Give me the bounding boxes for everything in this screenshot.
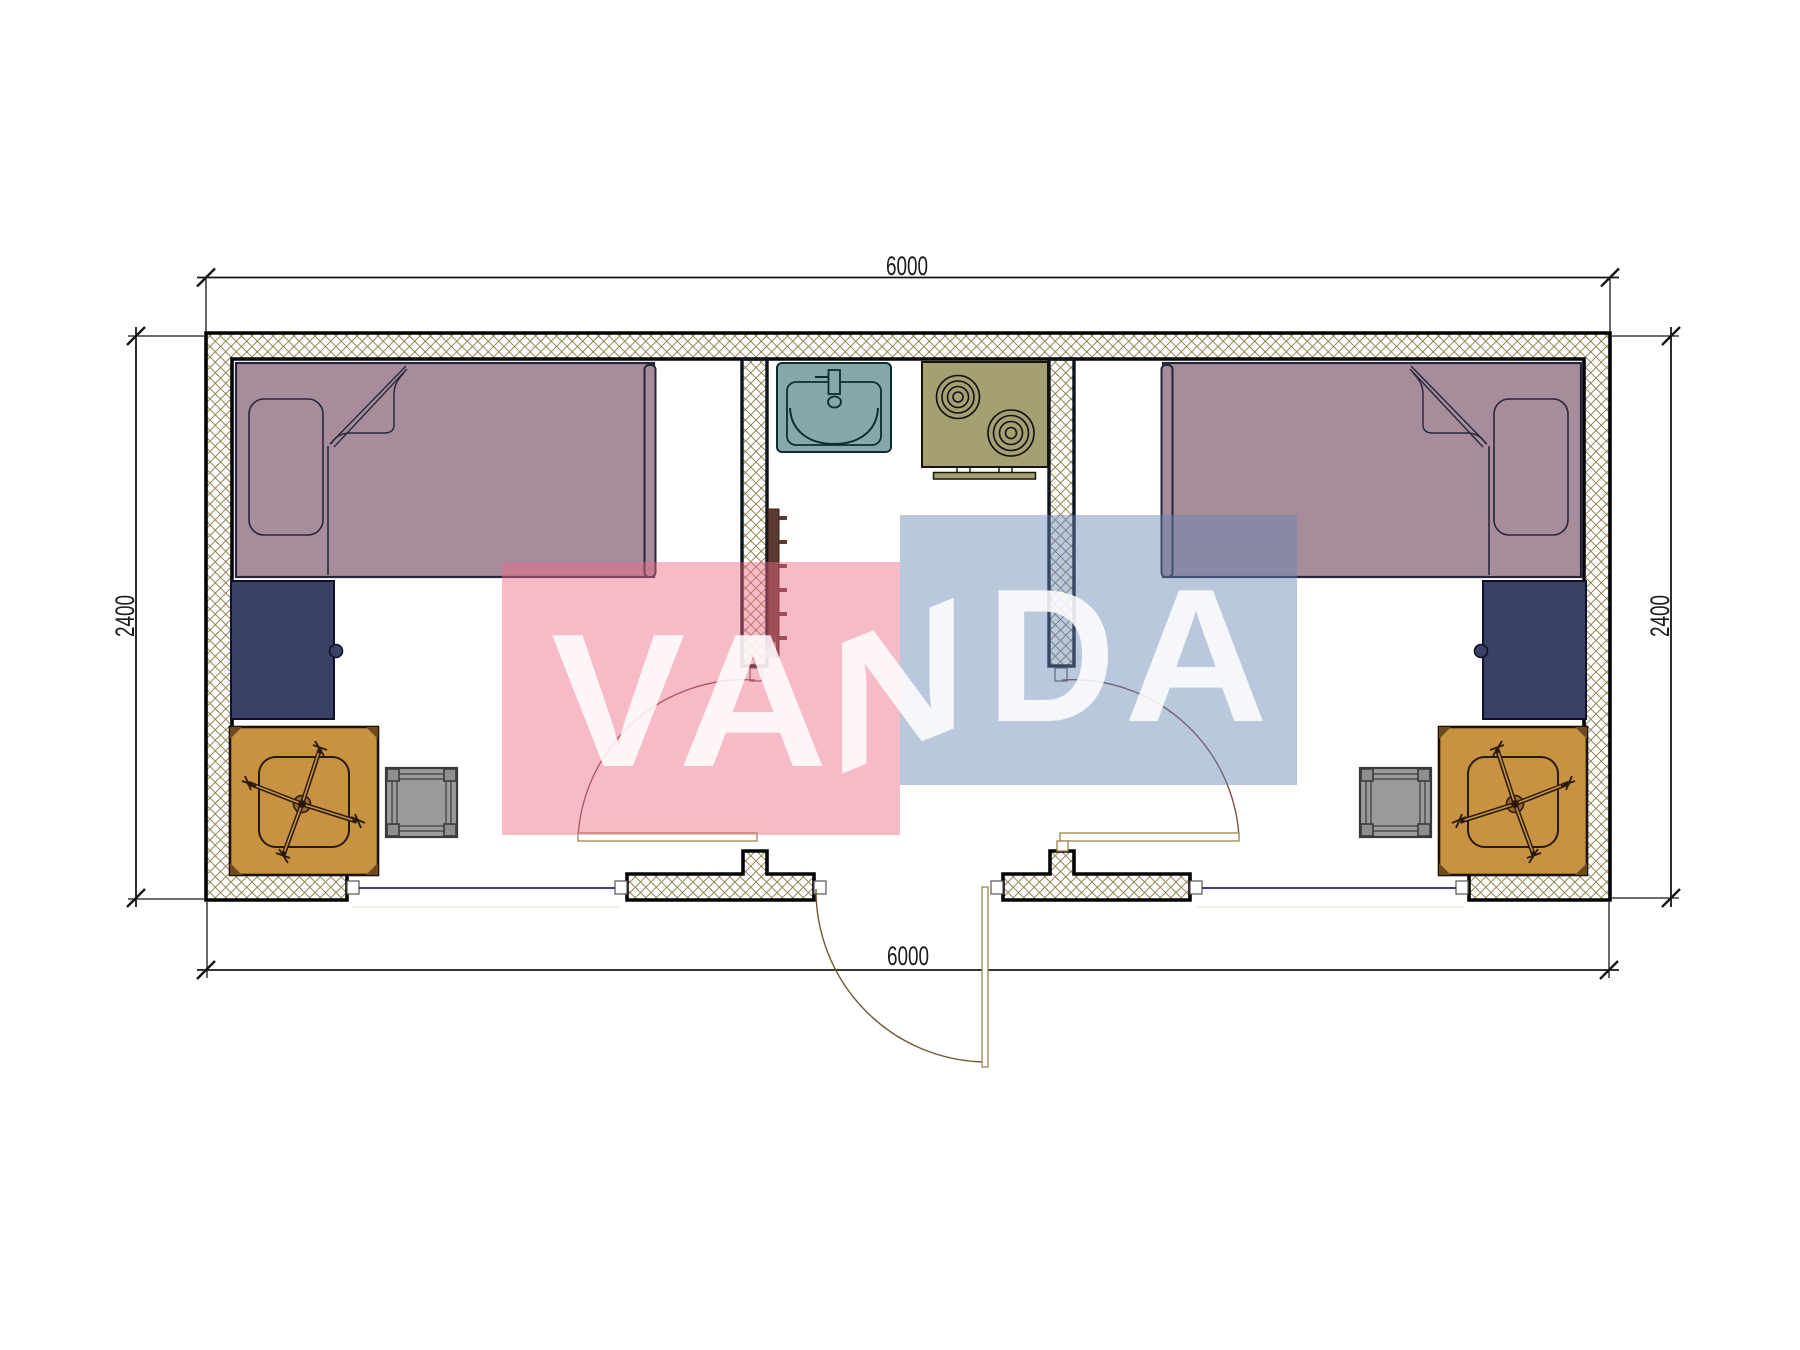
svg-text:6000: 6000	[887, 941, 929, 971]
svg-text:A: A	[678, 595, 828, 807]
svg-text:2400: 2400	[110, 595, 140, 637]
svg-text:6000: 6000	[886, 251, 928, 281]
svg-text:2400: 2400	[1645, 595, 1675, 637]
svg-text:D: D	[987, 550, 1116, 762]
svg-text:V: V	[551, 595, 685, 807]
svg-text:A: A	[1124, 550, 1268, 762]
